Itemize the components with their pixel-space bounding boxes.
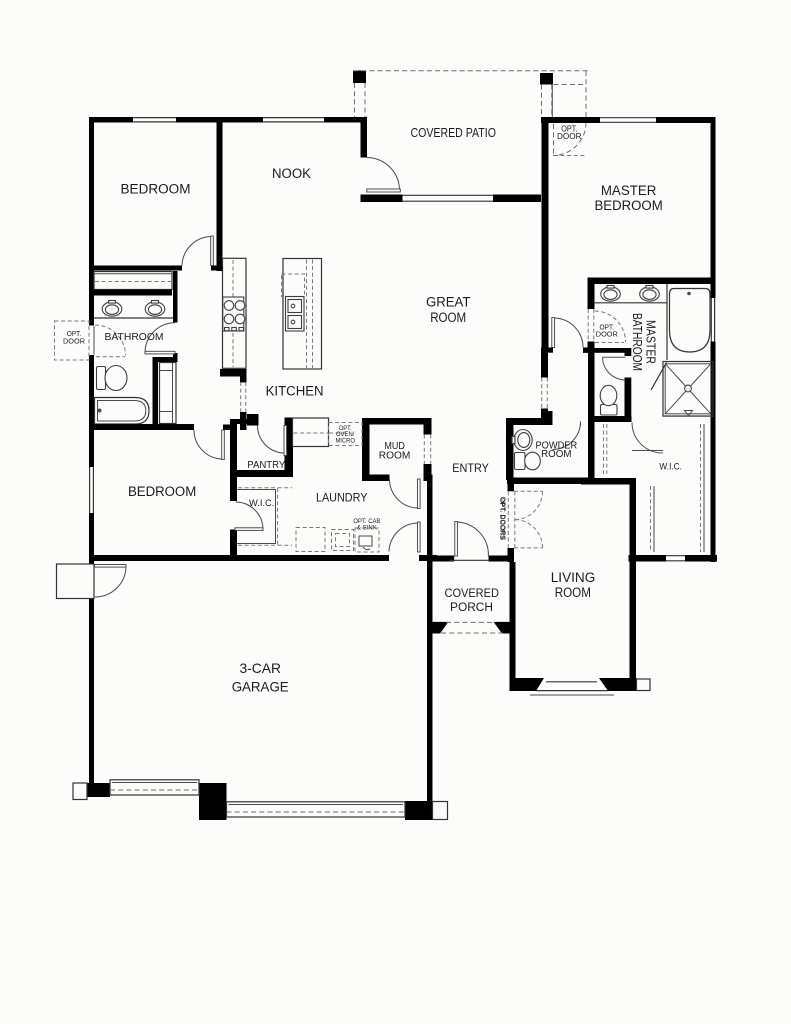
svg-text:ROOM: ROOM — [541, 448, 571, 460]
svg-text:MASTER: MASTER — [644, 320, 658, 364]
svg-text:W.I.C.: W.I.C. — [659, 462, 682, 473]
svg-text:COVERED: COVERED — [445, 588, 499, 600]
svg-text:ROOM: ROOM — [555, 585, 591, 600]
svg-text:LIVING: LIVING — [551, 570, 596, 585]
svg-text:ENTRY: ENTRY — [452, 463, 489, 475]
svg-text:BEDROOM: BEDROOM — [595, 198, 663, 213]
svg-text:KITCHEN: KITCHEN — [266, 383, 324, 398]
svg-text:BEDROOM: BEDROOM — [128, 484, 196, 499]
svg-text:DOOR: DOOR — [557, 132, 582, 141]
svg-text:NOOK: NOOK — [272, 166, 311, 181]
svg-text:LAUNDRY: LAUNDRY — [316, 490, 368, 504]
svg-text:BATHROOM: BATHROOM — [630, 313, 644, 371]
svg-text:MASTER: MASTER — [601, 183, 657, 198]
svg-text:ROOM: ROOM — [430, 310, 466, 325]
svg-text:& SINK: & SINK — [357, 525, 378, 532]
svg-text:GARAGE: GARAGE — [232, 679, 289, 695]
svg-text:GREAT: GREAT — [426, 295, 471, 310]
svg-text:MICRO: MICRO — [335, 438, 355, 445]
svg-text:OPT.: OPT. — [600, 325, 615, 332]
svg-text:OPT.: OPT. — [67, 331, 82, 338]
svg-text:OPT. DOORS: OPT. DOORS — [498, 498, 505, 540]
svg-text:PORCH: PORCH — [450, 602, 493, 614]
svg-text:COVERED PATIO: COVERED PATIO — [410, 126, 496, 140]
svg-text:ROOM: ROOM — [379, 450, 411, 462]
svg-text:3-CAR: 3-CAR — [239, 660, 281, 676]
svg-text:BEDROOM: BEDROOM — [121, 182, 191, 197]
svg-text:DOOR: DOOR — [63, 339, 85, 346]
svg-text:PANTRY: PANTRY — [247, 460, 285, 471]
svg-text:DOOR: DOOR — [596, 332, 618, 339]
svg-text:BATHROOM: BATHROOM — [105, 331, 164, 343]
svg-text:W.I.C.: W.I.C. — [249, 498, 274, 509]
